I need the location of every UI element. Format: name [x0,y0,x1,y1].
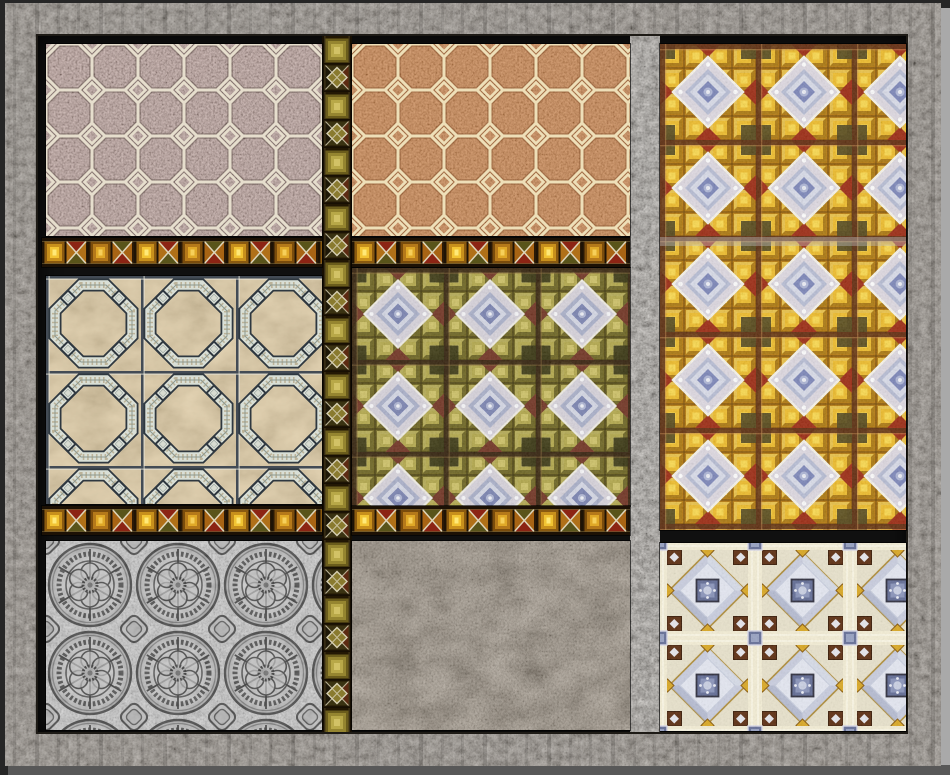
translucent-gray-band [660,237,906,246]
panel-pink-granite [46,44,322,236]
gold-trim-strip-3 [42,506,322,535]
texture-collage-canvas [0,0,950,775]
panel-silver-medallion [46,541,322,730]
edge-highlight-right [940,8,950,768]
gold-trim-strip-4 [352,506,630,535]
stone-pillar-divider [630,36,660,732]
edge-shadow-bottom [8,765,950,775]
gold-trim-strip-2 [352,238,630,267]
panel-ivory-mosaic [660,543,906,731]
panel-beige-marble [46,276,322,504]
panel-orange-terracotta [352,44,630,236]
gold-trim-strip-1 [42,238,322,267]
panel-olive-mosaic [352,268,630,506]
panel-brown-stone [352,541,630,730]
panel-gold-mosaic [660,44,906,530]
mosaic-divider-strip [322,36,352,732]
